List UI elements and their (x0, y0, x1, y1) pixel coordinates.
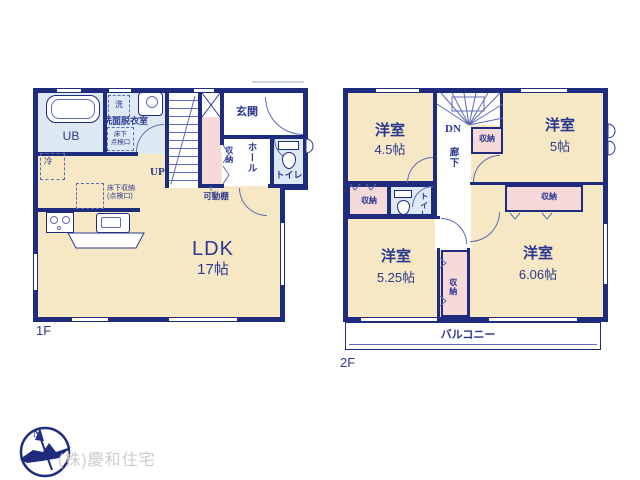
storage-nw-label: 収納 (350, 197, 388, 206)
storage1-label: 収納 (224, 146, 233, 164)
window (488, 317, 578, 322)
toilet1-label: トイレ (273, 171, 305, 181)
bedroom-nw-label: 洋室 (362, 123, 418, 140)
balcony-inner-line (349, 344, 597, 345)
washer-label: 洗 (108, 101, 130, 110)
ldk-size-label: 17帖 (183, 262, 243, 279)
counter-label: カウンター (84, 235, 140, 244)
compass-north-label: N (33, 428, 41, 440)
staircase-1f (169, 93, 198, 186)
bedroom-sw-label: 洋室 (368, 249, 424, 266)
stove-burner (50, 216, 58, 224)
stairs-dn-label: DN (445, 123, 461, 135)
window (360, 317, 438, 322)
floor1-label: 1F (36, 324, 51, 338)
window (168, 317, 238, 322)
movable-shelf-label: 可動棚 (195, 192, 237, 201)
window (280, 222, 285, 286)
stairs2-floor (435, 92, 503, 125)
wall (500, 93, 503, 129)
window (71, 317, 109, 322)
underfloor-storage-box (76, 183, 104, 209)
wall (198, 184, 224, 188)
stove-burner (62, 216, 70, 224)
hall-label: ホール (245, 142, 255, 174)
ldk-label: LDK (183, 238, 243, 260)
balcony-label: バルコニー (418, 329, 518, 341)
wall (433, 93, 437, 218)
toilet2-label: トイレ (419, 192, 428, 219)
hatch-label-2: 点検口 (107, 139, 134, 146)
entrance-storage-floor (201, 117, 221, 186)
floorplan-canvas: UB 洗 洗面脱衣室 床下 点検口 冷 床下収納 (点検口) UP 玄関 ホール… (0, 0, 640, 480)
window (520, 88, 568, 93)
bedroom-nw-size: 4.5帖 (362, 143, 418, 157)
bedroom-sw-size: 5.25帖 (366, 271, 426, 285)
underfloor-storage-label-1: 床下収納 (107, 185, 135, 193)
toilet2-tank (394, 190, 412, 198)
wall (165, 93, 169, 188)
company-name: (株)慶和住宅 (58, 446, 156, 470)
window (33, 253, 38, 291)
unit-bath-label: UB (56, 130, 86, 143)
bedroom-ne-size: 5帖 (532, 140, 588, 154)
vent-2f-a (608, 124, 615, 138)
window (193, 88, 215, 93)
wall (268, 184, 308, 188)
corridor-label: 廊下 (447, 147, 457, 168)
bedroom-se-label: 洋室 (508, 246, 568, 263)
floor2-label: 2F (340, 356, 355, 370)
window (56, 88, 82, 93)
wall (603, 88, 608, 322)
shoe-box-floor (201, 92, 221, 118)
storage-hall-label: 収納 (473, 135, 501, 144)
hatch-label-1: 床下 (107, 131, 134, 138)
stairs-up-label: UP (150, 166, 165, 178)
stove-burner (57, 226, 61, 230)
bathtub-inner (51, 99, 95, 119)
sink-bowl (101, 217, 121, 228)
toilet1-tank (278, 141, 299, 150)
washbasin-bowl (146, 96, 158, 108)
wall (198, 93, 202, 188)
window (108, 88, 132, 93)
storage-mid-label: 収納 (448, 278, 457, 296)
bedroom-ne-label: 洋室 (532, 118, 588, 135)
window (603, 223, 608, 285)
vent-2f-b (608, 141, 615, 155)
underfloor-storage-label-2: (点検口) (107, 193, 133, 201)
window (375, 88, 420, 93)
wall (437, 248, 440, 317)
storage-se-label: 収納 (534, 193, 564, 202)
fridge-label: 冷 (44, 157, 53, 166)
washroom-label: 洗面脱衣室 (103, 117, 148, 127)
bedroom-se-size: 6.06帖 (506, 268, 570, 282)
entrance-label: 玄関 (236, 106, 258, 118)
